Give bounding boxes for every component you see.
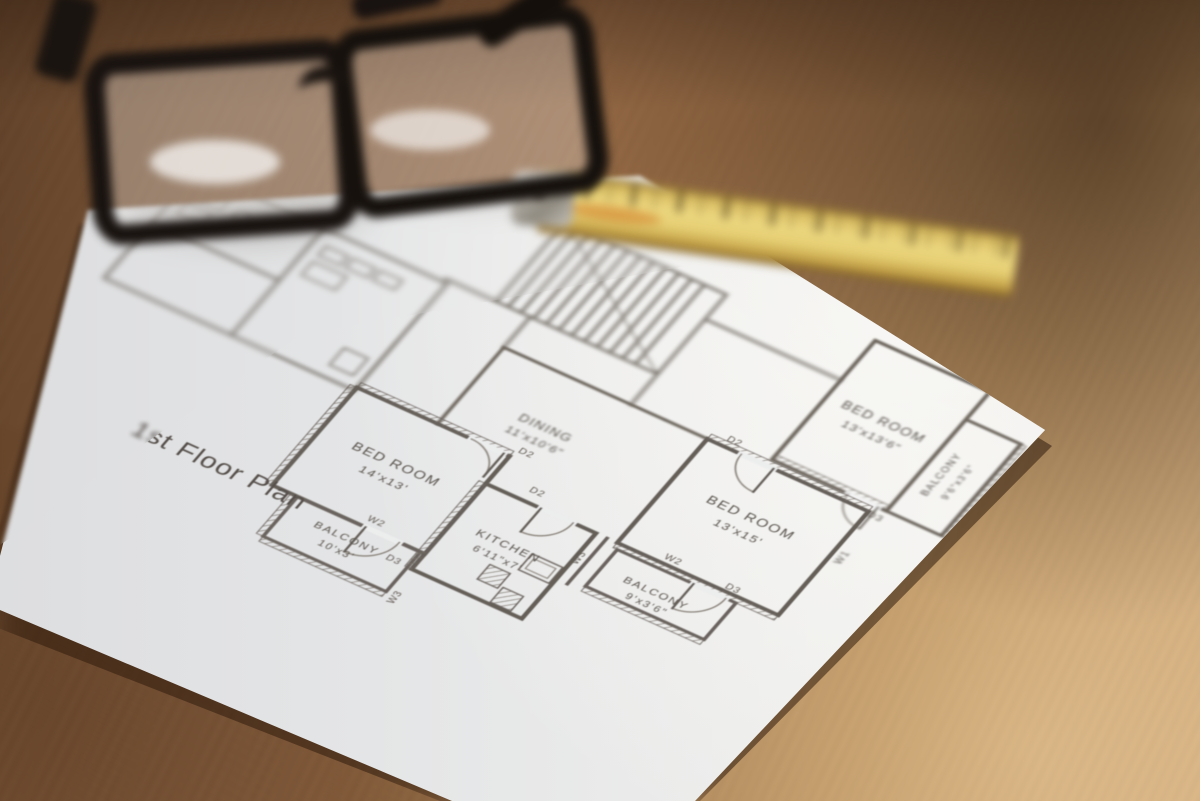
glasses-temple-arm [350,0,443,21]
right-lens [327,1,612,222]
eyeglasses [0,0,1200,801]
photo-floor-plan-on-desk: DINING 11'x10'6" BED ROOM 13'x13'6" BALC… [0,0,1200,801]
